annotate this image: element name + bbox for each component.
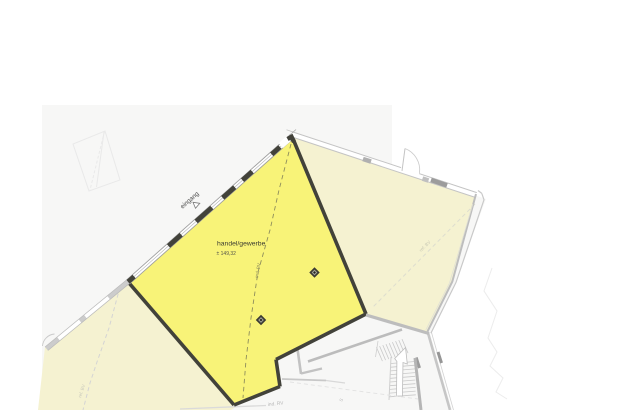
svg-text:± 149,32: ± 149,32	[217, 251, 237, 257]
svg-text:handel/gewerbe: handel/gewerbe	[217, 241, 266, 248]
